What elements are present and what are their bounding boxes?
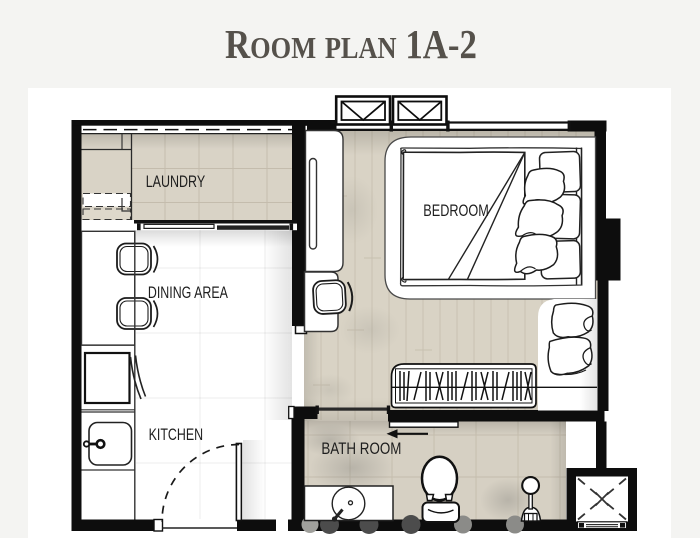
svg-text:KITCHEN: KITCHEN xyxy=(149,426,204,444)
svg-text:LAUNDRY: LAUNDRY xyxy=(146,173,206,191)
svg-text:BEDROOM: BEDROOM xyxy=(423,202,489,220)
svg-text:DINING AREA: DINING AREA xyxy=(148,284,228,302)
svg-text:BATH ROOM: BATH ROOM xyxy=(321,440,401,458)
